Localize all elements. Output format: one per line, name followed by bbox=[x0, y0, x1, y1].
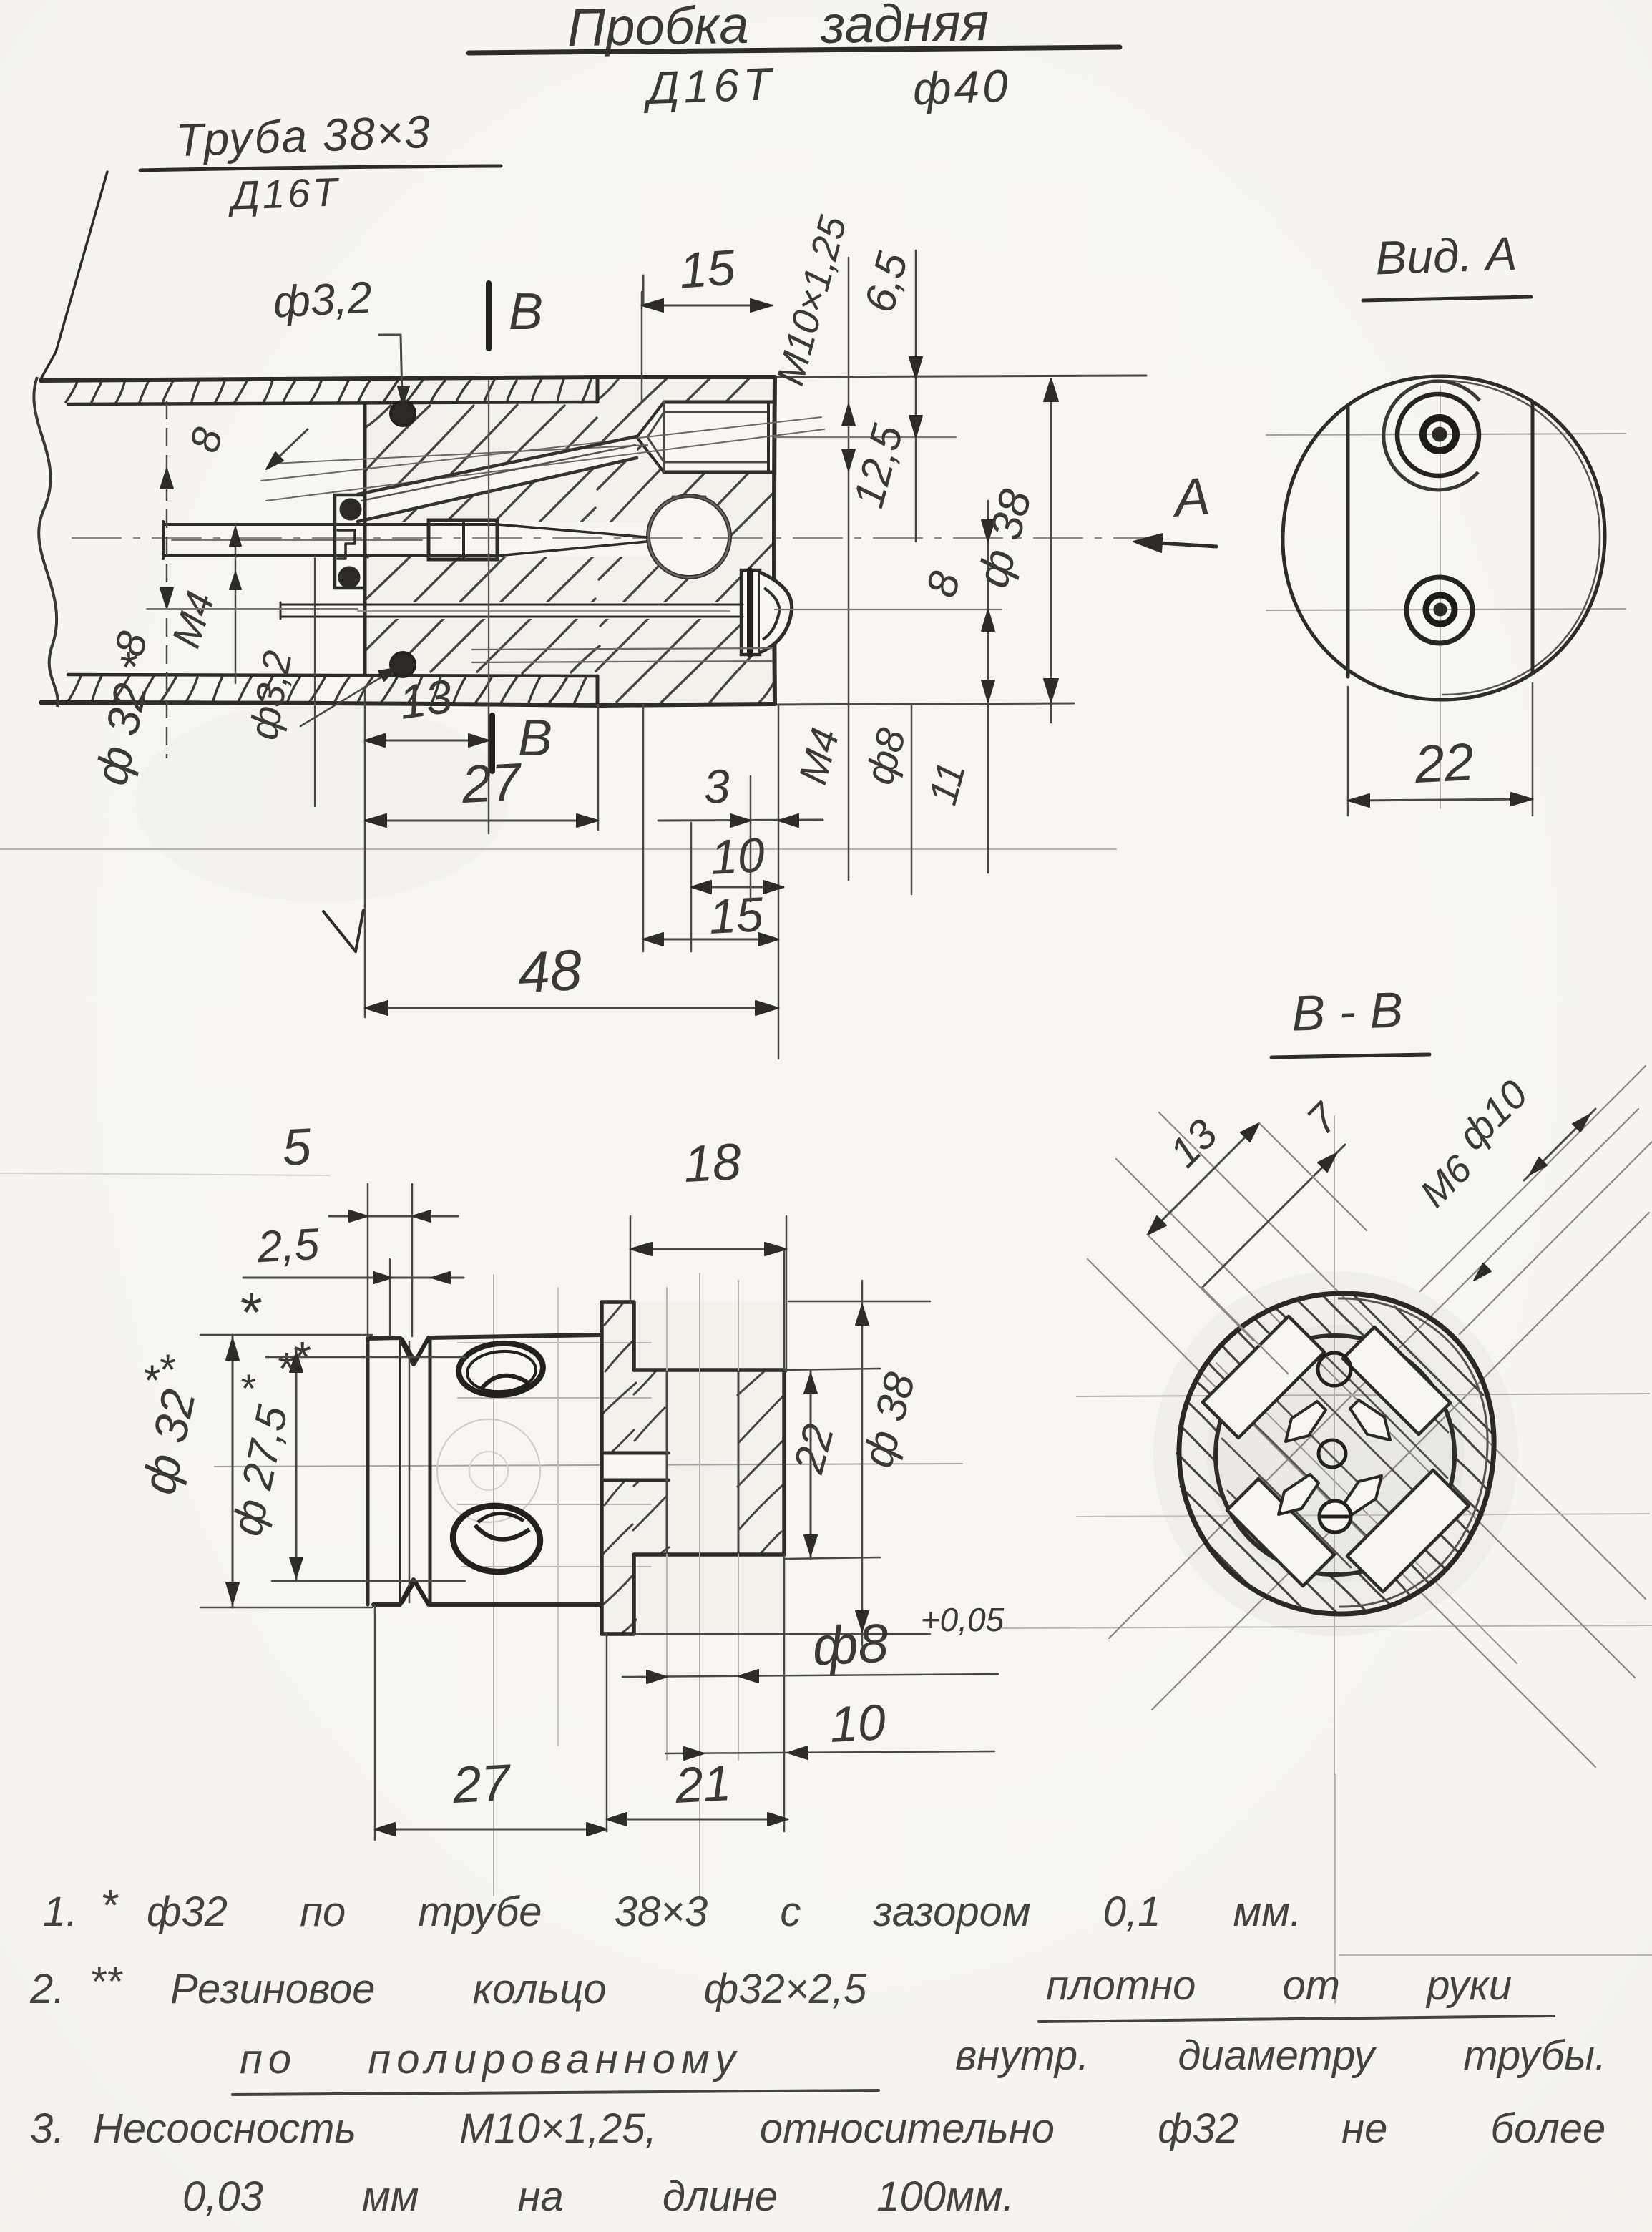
svg-text:3.: 3. bbox=[30, 2105, 64, 2152]
svg-text:ф8: ф8 bbox=[811, 1612, 890, 1677]
svg-text:ф40: ф40 bbox=[912, 60, 1012, 115]
svg-text:22: 22 bbox=[1412, 732, 1475, 794]
svg-text:ф3,2: ф3,2 bbox=[272, 273, 373, 327]
svg-text:плотно от руки: плотно от руки bbox=[1046, 1962, 1512, 2009]
svg-text:21: 21 bbox=[673, 1755, 733, 1813]
svg-text:2,5: 2,5 bbox=[255, 1220, 321, 1272]
svg-text:0,03 мм на длине 100мм.: 0,03 мм на длине 100мм. bbox=[182, 2173, 1015, 2220]
svg-text:5: 5 bbox=[281, 1118, 313, 1177]
svg-text:Д16Т: Д16Т bbox=[226, 169, 341, 217]
svg-text:18: 18 bbox=[683, 1133, 743, 1193]
svg-text:Д16Т: Д16Т bbox=[642, 58, 776, 114]
svg-text:+0,05: +0,05 bbox=[921, 1601, 1005, 1638]
svg-text:ф32 по трубе 38×3 с: ф32 по трубе 38×3 с зазором 0,1 мм. bbox=[147, 1889, 1301, 1935]
svg-text:27: 27 bbox=[451, 1754, 514, 1814]
svg-text:27: 27 bbox=[459, 752, 524, 814]
svg-text:*: * bbox=[100, 1881, 119, 1931]
svg-text:Труба 38×3: Труба 38×3 bbox=[175, 106, 432, 166]
svg-text:*: * bbox=[157, 1346, 175, 1394]
svg-text:внутр. диаметру трубы.: внутр. диаметру трубы. bbox=[955, 2032, 1606, 2079]
svg-text:15: 15 bbox=[708, 887, 765, 944]
svg-text:10: 10 bbox=[709, 828, 766, 885]
svg-text:В: В bbox=[509, 283, 543, 341]
svg-text:Несоосность М10×1,25, отно: Несоосность М10×1,25, относительно ф32 н… bbox=[93, 2105, 1605, 2152]
svg-text:48: 48 bbox=[517, 938, 584, 1005]
svg-text:А: А bbox=[1170, 466, 1212, 528]
svg-text:*: * bbox=[239, 1366, 256, 1411]
svg-text:по полированному: по полированному bbox=[240, 2036, 741, 2082]
svg-text:Резиновое кольцо ф32×2,5: Резиновое кольцо ф32×2,5 bbox=[170, 1966, 867, 2012]
svg-text:В: В bbox=[518, 710, 552, 767]
svg-text:**: ** bbox=[89, 1959, 124, 2005]
svg-text:3: 3 bbox=[703, 759, 732, 813]
svg-text:Вид. А: Вид. А bbox=[1374, 227, 1517, 285]
svg-text:2.: 2. bbox=[29, 1966, 64, 2012]
svg-text:15: 15 bbox=[678, 239, 738, 298]
svg-text:В - В: В - В bbox=[1291, 982, 1404, 1041]
svg-text:1.: 1. bbox=[43, 1889, 77, 1935]
svg-text:13: 13 bbox=[396, 669, 455, 729]
svg-text:10: 10 bbox=[829, 1694, 887, 1753]
